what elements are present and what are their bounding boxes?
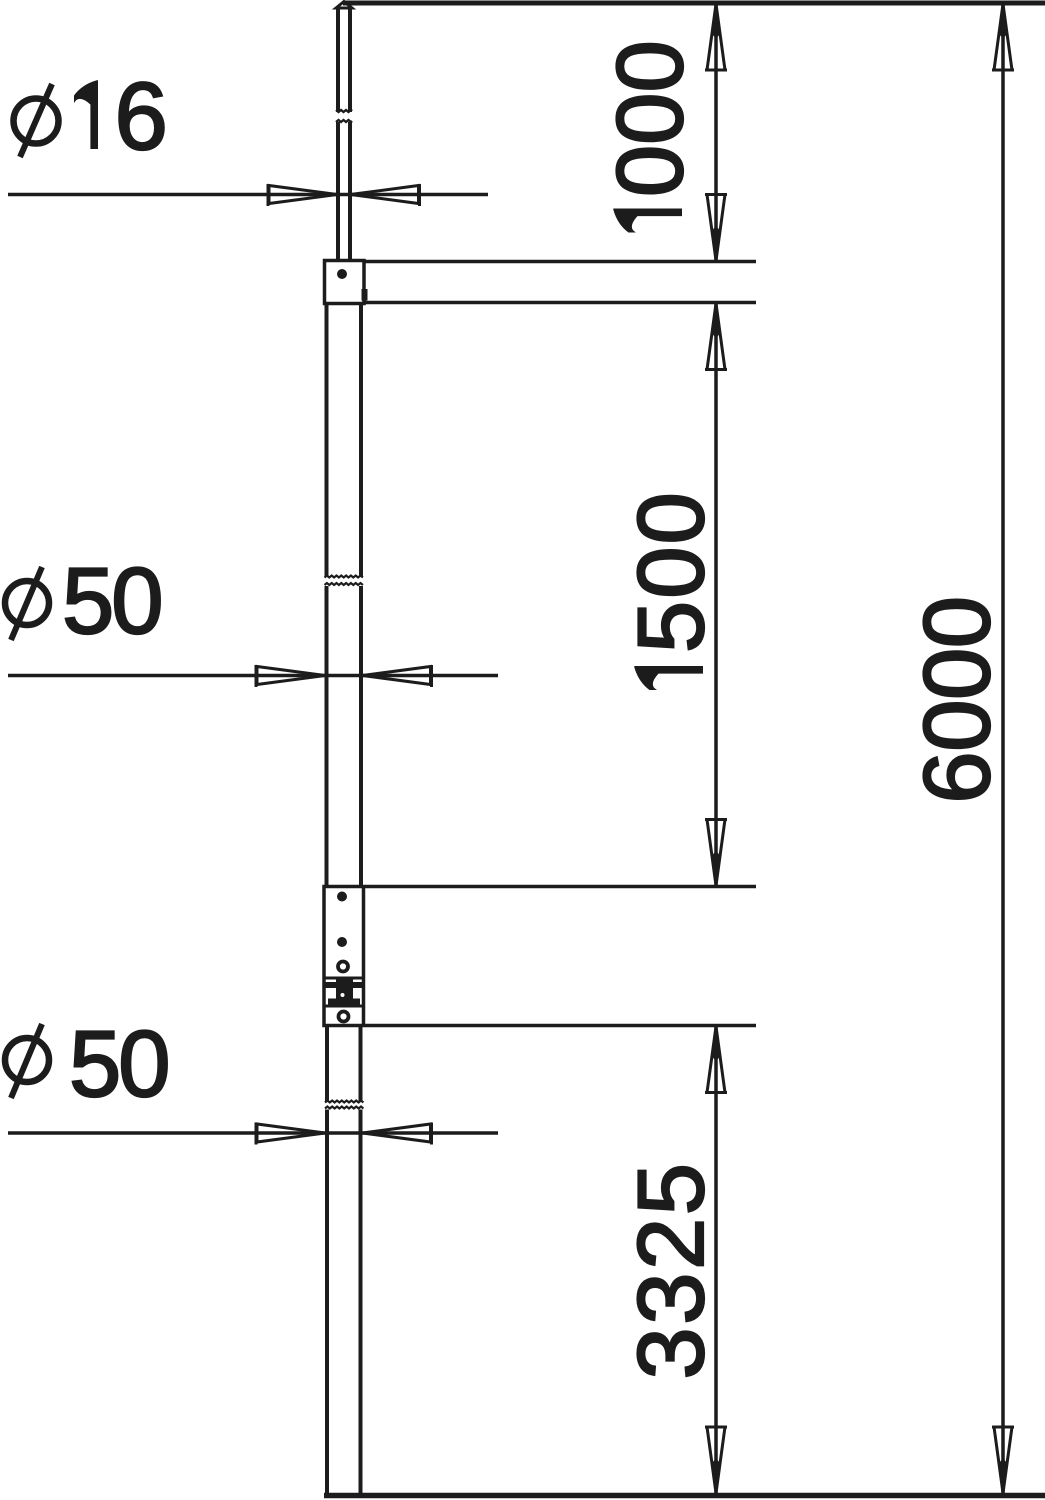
svg-text:500: 500 (618, 490, 723, 653)
svg-text:000: 000 (597, 40, 702, 197)
svg-text:50: 50 (69, 1011, 168, 1116)
svg-text:3325: 3325 (618, 1160, 723, 1379)
svg-text:50: 50 (62, 548, 161, 653)
svg-text:6000: 6000 (904, 596, 1009, 803)
svg-text:6: 6 (115, 63, 168, 170)
